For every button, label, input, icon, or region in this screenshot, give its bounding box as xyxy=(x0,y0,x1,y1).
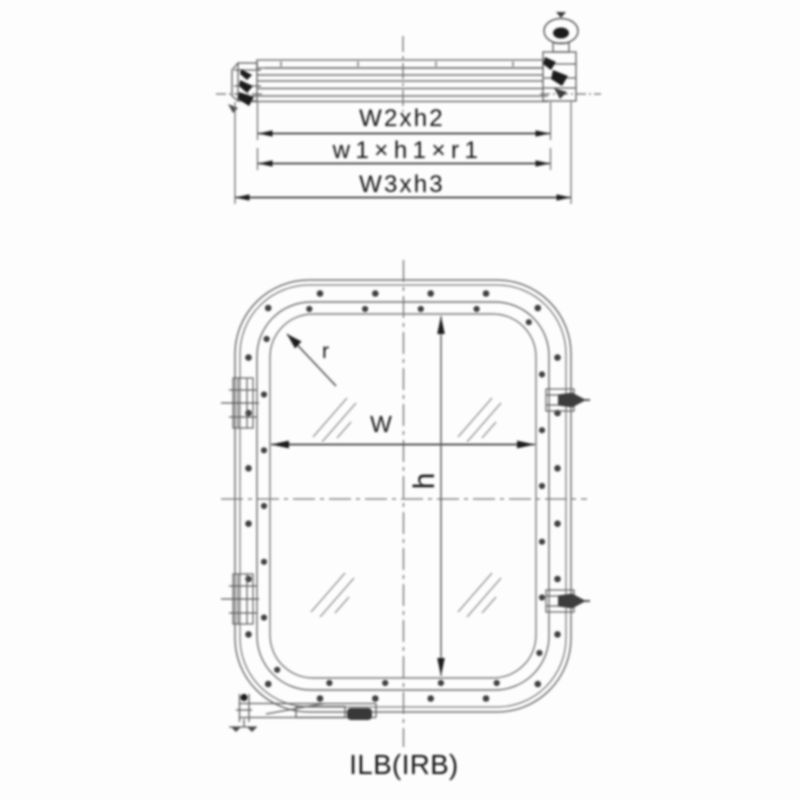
svg-text:W2xh2: W2xh2 xyxy=(359,105,445,132)
svg-text:W: W xyxy=(370,411,392,437)
svg-text:h: h xyxy=(408,473,441,490)
svg-text:r: r xyxy=(322,340,329,363)
svg-text:ILB(IRB): ILB(IRB) xyxy=(349,749,458,780)
svg-text:W3xh3: W3xh3 xyxy=(359,171,445,198)
svg-text:w1×h1×r1: w1×h1×r1 xyxy=(332,137,484,164)
